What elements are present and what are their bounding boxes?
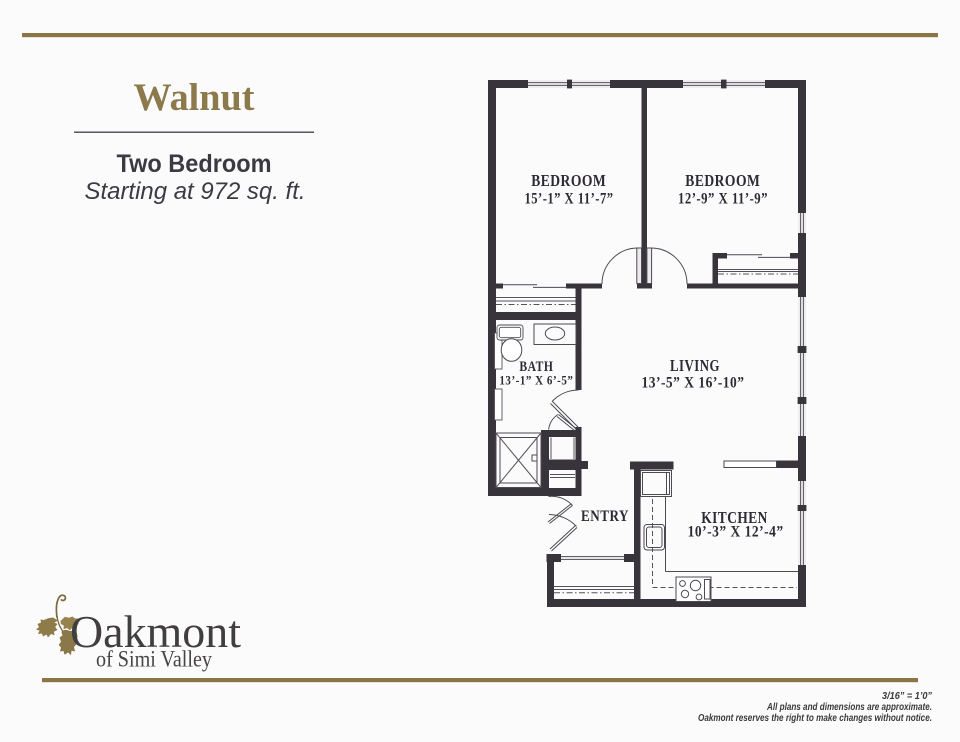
svg-text:Two Bedroom: Two Bedroom xyxy=(117,150,272,178)
svg-text:13’-5” X 16’-10”: 13’-5” X 16’-10” xyxy=(642,375,745,392)
svg-text:of Simi Valley: of Simi Valley xyxy=(96,647,212,672)
svg-text:12’-9” X 11’-9”: 12’-9” X 11’-9” xyxy=(678,191,768,208)
svg-text:BEDROOM: BEDROOM xyxy=(531,171,606,190)
svg-text:15’-1” X 11’-7”: 15’-1” X 11’-7” xyxy=(525,191,614,208)
svg-text:BEDROOM: BEDROOM xyxy=(685,171,760,190)
svg-text:Starting at 972 sq. ft.: Starting at 972 sq. ft. xyxy=(85,178,306,205)
svg-text:10’-3” X 12’-4”: 10’-3” X 12’-4” xyxy=(688,524,784,541)
svg-text:3/16” = 1’0”: 3/16” = 1’0” xyxy=(882,691,932,702)
svg-text:All plans and dimensions are a: All plans and dimensions are approximate… xyxy=(766,702,932,713)
svg-text:LIVING: LIVING xyxy=(670,356,720,375)
svg-text:Oakmont reserves the right to: Oakmont reserves the right to make chang… xyxy=(698,713,932,724)
svg-text:ENTRY: ENTRY xyxy=(581,508,629,525)
svg-text:13’-1” X 6’-5”: 13’-1” X 6’-5” xyxy=(499,374,573,388)
svg-text:Walnut: Walnut xyxy=(134,76,255,119)
